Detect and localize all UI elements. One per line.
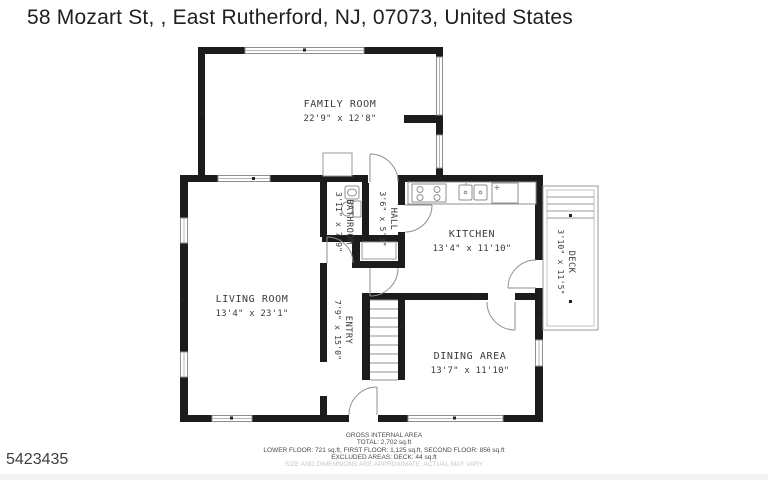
entry-label: ENTRY	[343, 316, 353, 345]
floor-plan: FAMILY ROOM 22'9" x 12'8" KITCHEN 13'4" …	[0, 0, 768, 480]
living-room-dims: 13'4" x 23'1"	[215, 309, 288, 319]
floor-areas: LOWER FLOOR: 721 sq.ft, FIRST FLOOR: 1,1…	[0, 447, 768, 454]
dimension-ticks	[182, 49, 572, 420]
gross-internal-area-heading: GROSS INTERNAL AREA	[0, 432, 768, 439]
living-room-label: LIVING ROOM	[216, 294, 289, 305]
kitchen-dims: 13'4" x 11'10"	[433, 244, 512, 254]
deck-label: DECK	[566, 251, 576, 274]
refrigerator	[492, 183, 518, 203]
dining-area-label: DINING AREA	[434, 351, 507, 362]
staircase	[370, 300, 398, 380]
bathroom-dims: 3'11" x 7'9"	[334, 192, 344, 252]
family-room-dims: 22'9" x 12'8"	[303, 114, 376, 124]
kitchen-label: KITCHEN	[449, 229, 495, 240]
excluded-areas: EXCLUDED AREAS: DECK: 44 sq.ft	[0, 454, 768, 461]
total-area: TOTAL: 2,702 sq.ft	[0, 439, 768, 446]
bathroom-label: BATHROOM	[344, 199, 354, 245]
fireplace-chase	[323, 153, 352, 176]
entry-dims: 7'9" x 15'0"	[333, 300, 343, 360]
family-room-label: FAMILY ROOM	[304, 99, 377, 110]
plan-id: 5423435	[6, 451, 68, 469]
deck-dims: 3'10" x 11'5"	[556, 229, 566, 294]
disclaimer: SIZE AND DIMENSIONS ARE APPROXIMATE, ACT…	[0, 461, 768, 468]
bathroom-sink	[345, 186, 359, 199]
hall-dims: 3'6" x 5'3"	[378, 191, 388, 246]
hall-label: HALL	[388, 208, 398, 231]
dining-area-dims: 13'7" x 11'10"	[431, 366, 510, 376]
area-summary: GROSS INTERNAL AREA TOTAL: 2,702 sq.ft L…	[0, 432, 768, 468]
bottom-strip	[0, 474, 768, 480]
